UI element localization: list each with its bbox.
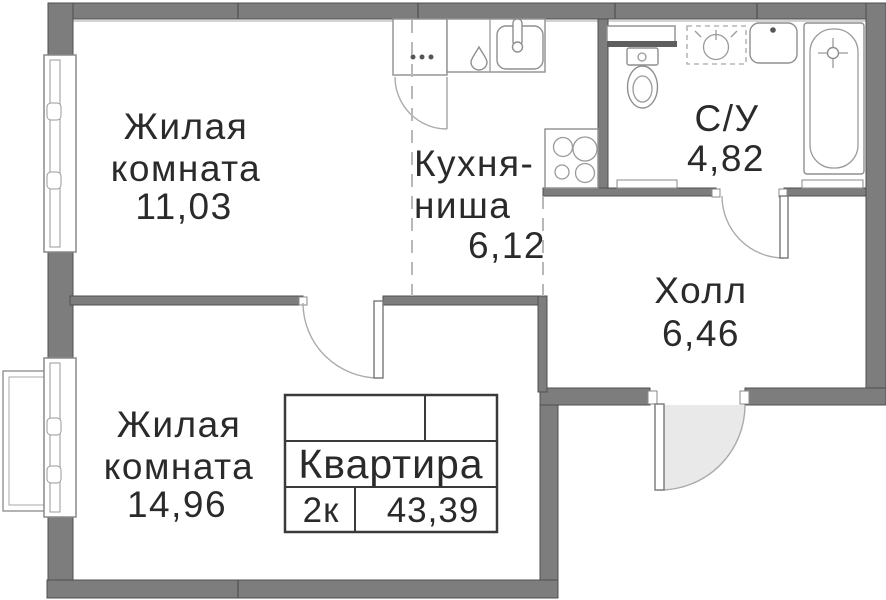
- wall-left-lower: [48, 515, 73, 583]
- living-room-2-name-line1: Жилая: [117, 404, 242, 445]
- wall-kitchen-bathroom: [598, 19, 608, 193]
- bathroom-name: С/У: [694, 98, 759, 139]
- hall-name: Холл: [654, 270, 747, 311]
- door-jamb: [712, 189, 720, 197]
- wall-left-middle: [48, 250, 73, 360]
- window-handle-icon: [47, 103, 61, 120]
- floor-plan-svg: Жилая комната 11,03 Кухня- ниша 6,12 С/У…: [0, 0, 886, 600]
- window-glazing: [50, 363, 60, 512]
- living-room-1-name-line1: Жилая: [124, 106, 249, 147]
- wall-rooms-divider-left: [70, 296, 303, 305]
- door-swing-arc: [303, 303, 379, 378]
- door-jamb: [740, 391, 749, 404]
- balcony-basket-icon: [3, 371, 48, 511]
- window-handle-icon: [47, 466, 61, 483]
- cabinet-dot: [411, 55, 416, 60]
- bathtub-icon: [804, 23, 864, 174]
- kitchen-faucet-base: [513, 42, 523, 52]
- door-swing-fill: [660, 405, 745, 490]
- bathroom-threshold-right: [802, 180, 863, 188]
- living-room-1-name-line2: комната: [111, 148, 261, 189]
- bathroom-threshold-left: [617, 180, 677, 188]
- cabinet-dot: [429, 55, 434, 60]
- door-bathroom: [712, 189, 788, 258]
- washbasin-faucet-dot: [770, 27, 776, 33]
- hall-area: 6,46: [662, 313, 740, 354]
- washing-machine-mark: [695, 31, 701, 37]
- stamp-rooms-count: 2к: [303, 491, 340, 530]
- wall-bottom: [47, 580, 558, 598]
- wall-hall-left: [538, 296, 547, 392]
- window-living-room-2: [3, 358, 76, 517]
- wardrobe-cabinet-icon: [393, 19, 447, 75]
- window-handle-icon: [47, 172, 61, 189]
- wall-top: [48, 3, 886, 19]
- floor-plan-page: Жилая комната 11,03 Кухня- ниша 6,12 С/У…: [0, 0, 886, 600]
- bathroom-area: 4,82: [687, 138, 765, 179]
- ventilation-box-bar: [607, 41, 677, 47]
- window-living-room-1: [44, 55, 76, 252]
- living-room-2-area: 14,96: [127, 484, 227, 525]
- door-living-room-2: [299, 297, 383, 378]
- washing-machine-mark: [731, 31, 737, 37]
- wall-rooms-divider-right: [383, 296, 547, 305]
- cabinet-dot: [420, 55, 425, 60]
- kitchen-niche-name-line1: Кухня-: [414, 143, 534, 184]
- wall-bathroom-bottom-left: [543, 188, 716, 196]
- stamp-title: Квартира: [298, 441, 483, 487]
- door-leaf: [780, 196, 788, 258]
- ventilation-box-icon: [607, 26, 675, 42]
- kitchen-niche-area: 6,12: [468, 225, 546, 266]
- wall-livingroom2-right: [540, 405, 558, 580]
- apartment-stamp: Квартира 2к 43,39: [285, 395, 497, 532]
- living-room-1-area: 11,03: [135, 186, 232, 227]
- wall-left-upper: [48, 3, 73, 57]
- toilet-tank: [627, 48, 658, 65]
- wall-bathroom-bottom-right: [784, 188, 866, 196]
- window-glazing: [50, 60, 60, 247]
- bathtub-tap-icon: [828, 48, 839, 59]
- entrance-door: [648, 391, 749, 490]
- door-swing-arc: [722, 196, 784, 258]
- living-room-2-name-line2: комната: [104, 446, 254, 487]
- wall-right: [866, 3, 886, 405]
- door-leaf: [655, 404, 664, 490]
- door-leaf: [374, 301, 383, 378]
- stamp-total-area: 43,39: [387, 491, 480, 530]
- kitchen-niche-name-line2: ниша: [414, 185, 511, 226]
- wall-hall-bottom-left: [540, 388, 650, 405]
- wall-hall-bottom-right: [745, 388, 886, 405]
- door-jamb: [648, 391, 657, 404]
- cabinet-door-arc: [395, 77, 447, 129]
- window-handle-icon: [47, 418, 61, 435]
